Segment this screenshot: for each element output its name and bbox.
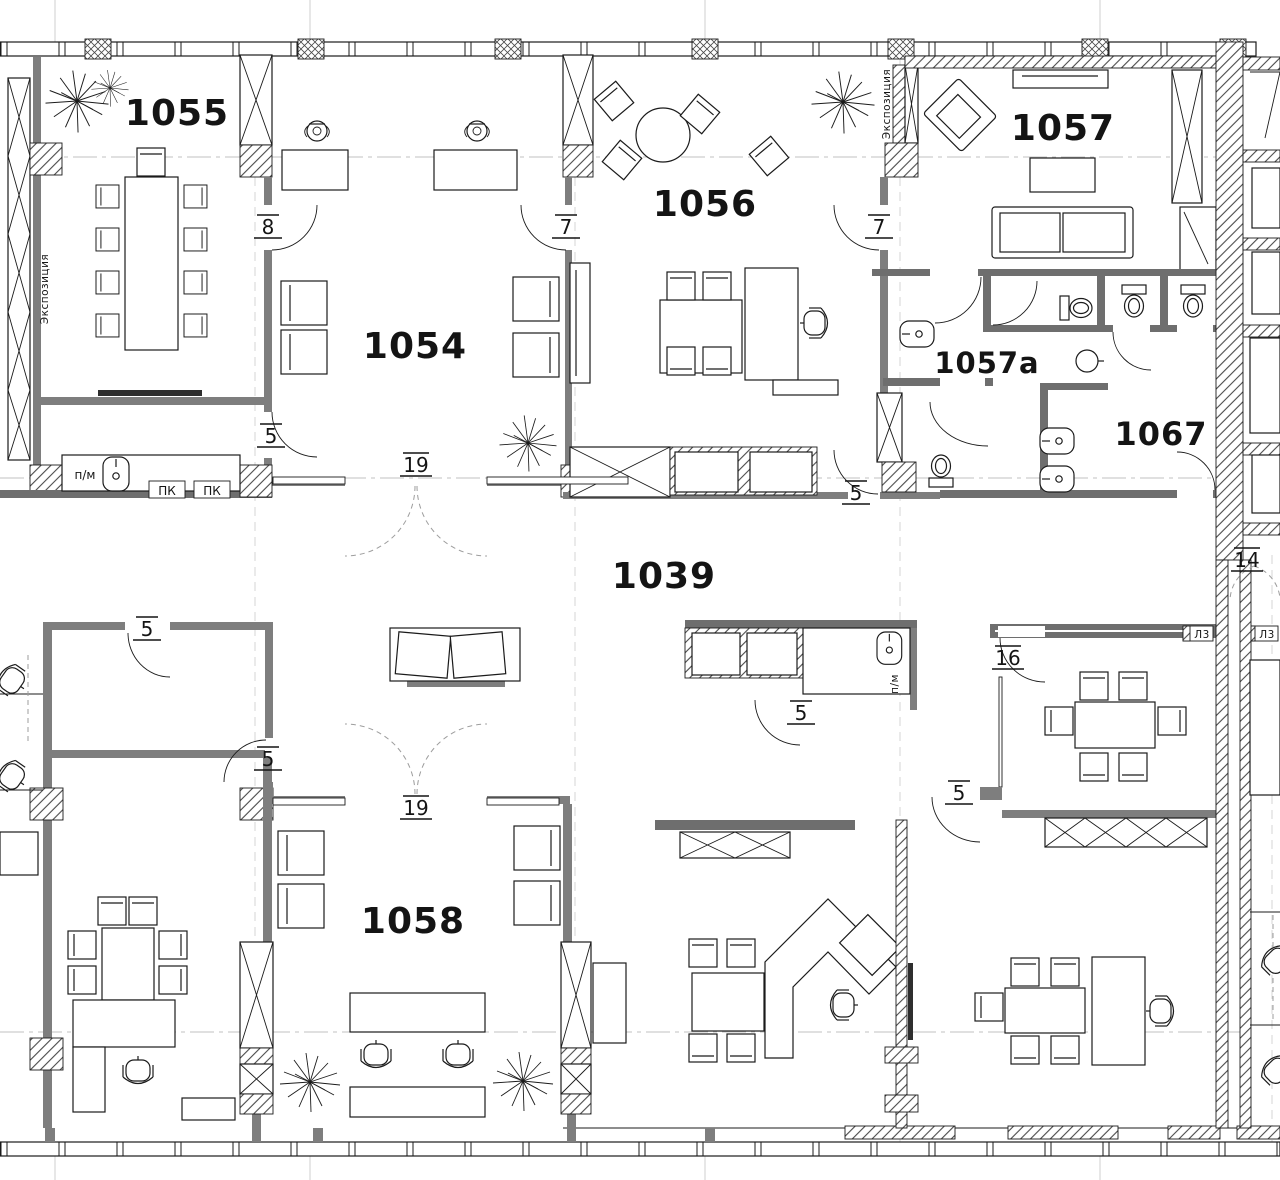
toilet-icon (1122, 285, 1146, 317)
desk (350, 993, 485, 1032)
bench (350, 1087, 485, 1117)
round-sink-icon (1076, 350, 1098, 372)
pk-label-2: ПК (203, 484, 221, 498)
door-tag-8: 8 (254, 215, 282, 239)
svg-text:Л3: Л3 (1194, 629, 1210, 641)
corridor-1039: п/м 1039 (240, 447, 917, 820)
room-1056: 1056 Экспозиция (594, 69, 893, 395)
coffee-pot-icon (465, 121, 490, 141)
tv-panel (570, 263, 590, 383)
sink-icon (877, 632, 902, 664)
sink-icon (1040, 428, 1074, 454)
svg-text:Л3: Л3 (1259, 629, 1275, 641)
door-tag-7: 7 (552, 215, 580, 239)
lz-box: Л3 (1183, 626, 1213, 641)
door-tag-19: 19 (400, 796, 432, 820)
table (692, 973, 764, 1031)
plant-icon (812, 72, 875, 134)
armchair (923, 78, 997, 152)
washer-label: п/м (75, 468, 96, 482)
room-label-1057a: 1057a (934, 346, 1039, 380)
exposition-wall-left (8, 78, 30, 460)
office-chair (1257, 941, 1280, 982)
sink-icon (103, 457, 129, 491)
svg-text:5: 5 (795, 701, 808, 725)
room-1054: 1054 (281, 121, 590, 472)
door-tag-7: 7 (865, 215, 893, 239)
svg-text:5: 5 (953, 781, 966, 805)
svg-text:5: 5 (262, 747, 275, 771)
bottom-left-office (0, 622, 273, 1128)
desk (73, 1000, 175, 1047)
svg-text:5: 5 (265, 424, 278, 448)
office-chair (361, 1040, 391, 1068)
toilet-icon (1060, 296, 1092, 320)
toilet-icon (929, 455, 953, 487)
office-chair (123, 1056, 153, 1084)
exposition-label-right: Экспозиция (881, 69, 893, 139)
coffee-pot-icon (305, 121, 330, 141)
office-chair (831, 990, 859, 1020)
plant-icon (493, 1052, 553, 1111)
door-tag-5: 5 (787, 701, 815, 725)
floor-plan-drawing: 1055 Экспозиция п/м ПК ПК 1054 1056 Эксп… (0, 0, 1280, 1180)
room-1055: 1055 Экспозиция (39, 70, 229, 396)
lz-box: Л3 (1248, 626, 1278, 641)
closet (1180, 207, 1216, 270)
door-tag-5: 5 (945, 781, 973, 805)
door-tag-5: 5 (133, 617, 161, 641)
office-chair (800, 308, 828, 338)
svg-text:7: 7 (560, 215, 573, 239)
side-table (1030, 158, 1095, 192)
office-chair (443, 1040, 473, 1068)
svg-text:16: 16 (995, 646, 1020, 670)
exposition-label-left: Экспозиция (39, 254, 51, 324)
sofa (992, 207, 1133, 258)
washer-label-right: п/м (889, 674, 901, 694)
plant-icon (91, 70, 128, 107)
desk (1092, 957, 1145, 1065)
kitchen-niche: п/м ПК ПК (62, 455, 240, 498)
kitchenette: п/м (685, 620, 917, 710)
meeting-table (1075, 702, 1155, 748)
room-label-1039: 1039 (612, 556, 716, 597)
lockers (390, 628, 520, 687)
svg-text:5: 5 (850, 481, 863, 505)
room-label-1067: 1067 (1114, 415, 1207, 453)
desk (745, 268, 798, 380)
svg-text:7: 7 (873, 215, 886, 239)
room-label-1055: 1055 (125, 93, 229, 134)
desk-room (975, 957, 1174, 1065)
door-tag-16: 16 (992, 646, 1024, 670)
floor-plan-canvas: 1055 Экспозиция п/м ПК ПК 1054 1056 Эксп… (0, 0, 1280, 1180)
svg-text:19: 19 (403, 796, 428, 820)
table (1005, 988, 1085, 1033)
tv-panel (908, 963, 913, 1040)
door-tag-19: 19 (400, 453, 432, 477)
east-wing (1216, 42, 1280, 1128)
office-chair (1146, 996, 1174, 1026)
svg-text:19: 19 (403, 453, 428, 477)
sink-icon (1040, 466, 1074, 492)
sink-icon (900, 321, 934, 347)
room-label-1058: 1058 (361, 901, 465, 942)
bathroom-block: 1057a 1067 (872, 269, 1216, 498)
door-tag-5: 5 (257, 424, 285, 448)
plant-icon (500, 415, 557, 471)
conference-table (125, 177, 178, 350)
room-label-1056: 1056 (653, 184, 757, 225)
middle-bottom-room (655, 820, 918, 1128)
pk-label-1: ПК (158, 484, 176, 498)
room-1058: 1058 (278, 804, 626, 1117)
sideboard (98, 390, 202, 396)
room-label-1054: 1054 (363, 326, 467, 367)
svg-text:8: 8 (262, 215, 275, 239)
plant-icon (46, 71, 109, 133)
table (102, 928, 154, 1000)
office-chair (0, 757, 33, 797)
door-tag-14: 14 (1231, 548, 1263, 572)
toilet-icon (1181, 285, 1205, 317)
office-chair (1257, 1051, 1280, 1092)
plant-icon (280, 1053, 340, 1112)
svg-text:5: 5 (141, 617, 154, 641)
svg-text:14: 14 (1234, 548, 1259, 572)
room-label-1057: 1057 (1011, 108, 1115, 149)
